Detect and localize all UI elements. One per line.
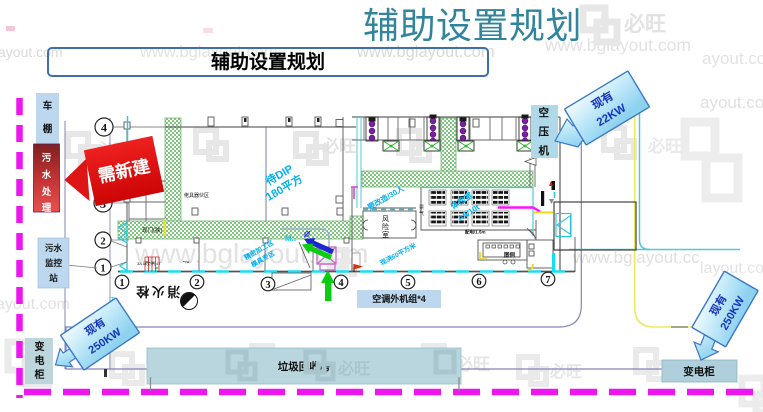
svg-text:室: 室 — [382, 230, 389, 239]
svg-text:变电柜: 变电柜 — [683, 365, 715, 378]
svg-text:4: 4 — [338, 278, 344, 289]
svg-text:4: 4 — [101, 121, 107, 135]
svg-text:必旺: 必旺 — [624, 12, 666, 36]
svg-text:柜: 柜 — [34, 368, 45, 381]
svg-text:2: 2 — [194, 278, 199, 289]
svg-text:配电/1.5m: 配电/1.5m — [465, 229, 486, 236]
svg-text:车: 车 — [43, 100, 53, 112]
svg-text:理: 理 — [42, 203, 52, 214]
svg-text:必旺: 必旺 — [337, 359, 370, 378]
svg-text:棚: 棚 — [43, 123, 53, 135]
svg-text:险: 险 — [382, 222, 389, 231]
svg-text:消火栓: 消火栓 — [134, 284, 181, 299]
svg-text:污水: 污水 — [45, 243, 63, 253]
svg-text:必旺: 必旺 — [647, 136, 682, 156]
svg-text:电: 电 — [35, 354, 45, 367]
svg-text:M..: M.. — [285, 234, 296, 243]
svg-text:空调外机组*4: 空调外机组*4 — [372, 293, 426, 304]
svg-text:˜™: ˜™ — [182, 261, 190, 267]
svg-text:图例: 图例 — [504, 251, 516, 259]
svg-text:现浇60平方米: 现浇60平方米 — [378, 240, 418, 267]
svg-text:2: 2 — [100, 237, 105, 248]
svg-text:水: 水 — [42, 169, 52, 181]
svg-text:1: 1 — [100, 264, 105, 275]
svg-text:现门(狭): 现门(狭) — [142, 226, 162, 234]
svg-text:机: 机 — [539, 144, 550, 157]
svg-text:处: 处 — [41, 186, 52, 198]
svg-text:佬具器伙区: 佬具器伙区 — [184, 192, 209, 199]
svg-text:6: 6 — [476, 277, 481, 288]
svg-text:污: 污 — [42, 152, 52, 164]
svg-text:3: 3 — [265, 280, 270, 291]
svg-text:必旺: 必旺 — [549, 362, 582, 381]
svg-text:监控: 监控 — [45, 258, 63, 268]
svg-text:1: 1 — [119, 278, 124, 289]
svg-text:7: 7 — [545, 275, 550, 286]
svg-text:气: 气 — [419, 210, 424, 217]
svg-text:必旺: 必旺 — [321, 136, 356, 156]
svg-text:压: 压 — [539, 126, 550, 138]
svg-text:变: 变 — [35, 340, 45, 353]
svg-text:风: 风 — [382, 215, 389, 223]
svg-text:空: 空 — [539, 106, 550, 119]
svg-text:5: 5 — [405, 278, 410, 289]
svg-text:3A.球克明.4T: 3A.球克明.4T — [137, 260, 161, 266]
svg-text:站: 站 — [49, 273, 58, 283]
